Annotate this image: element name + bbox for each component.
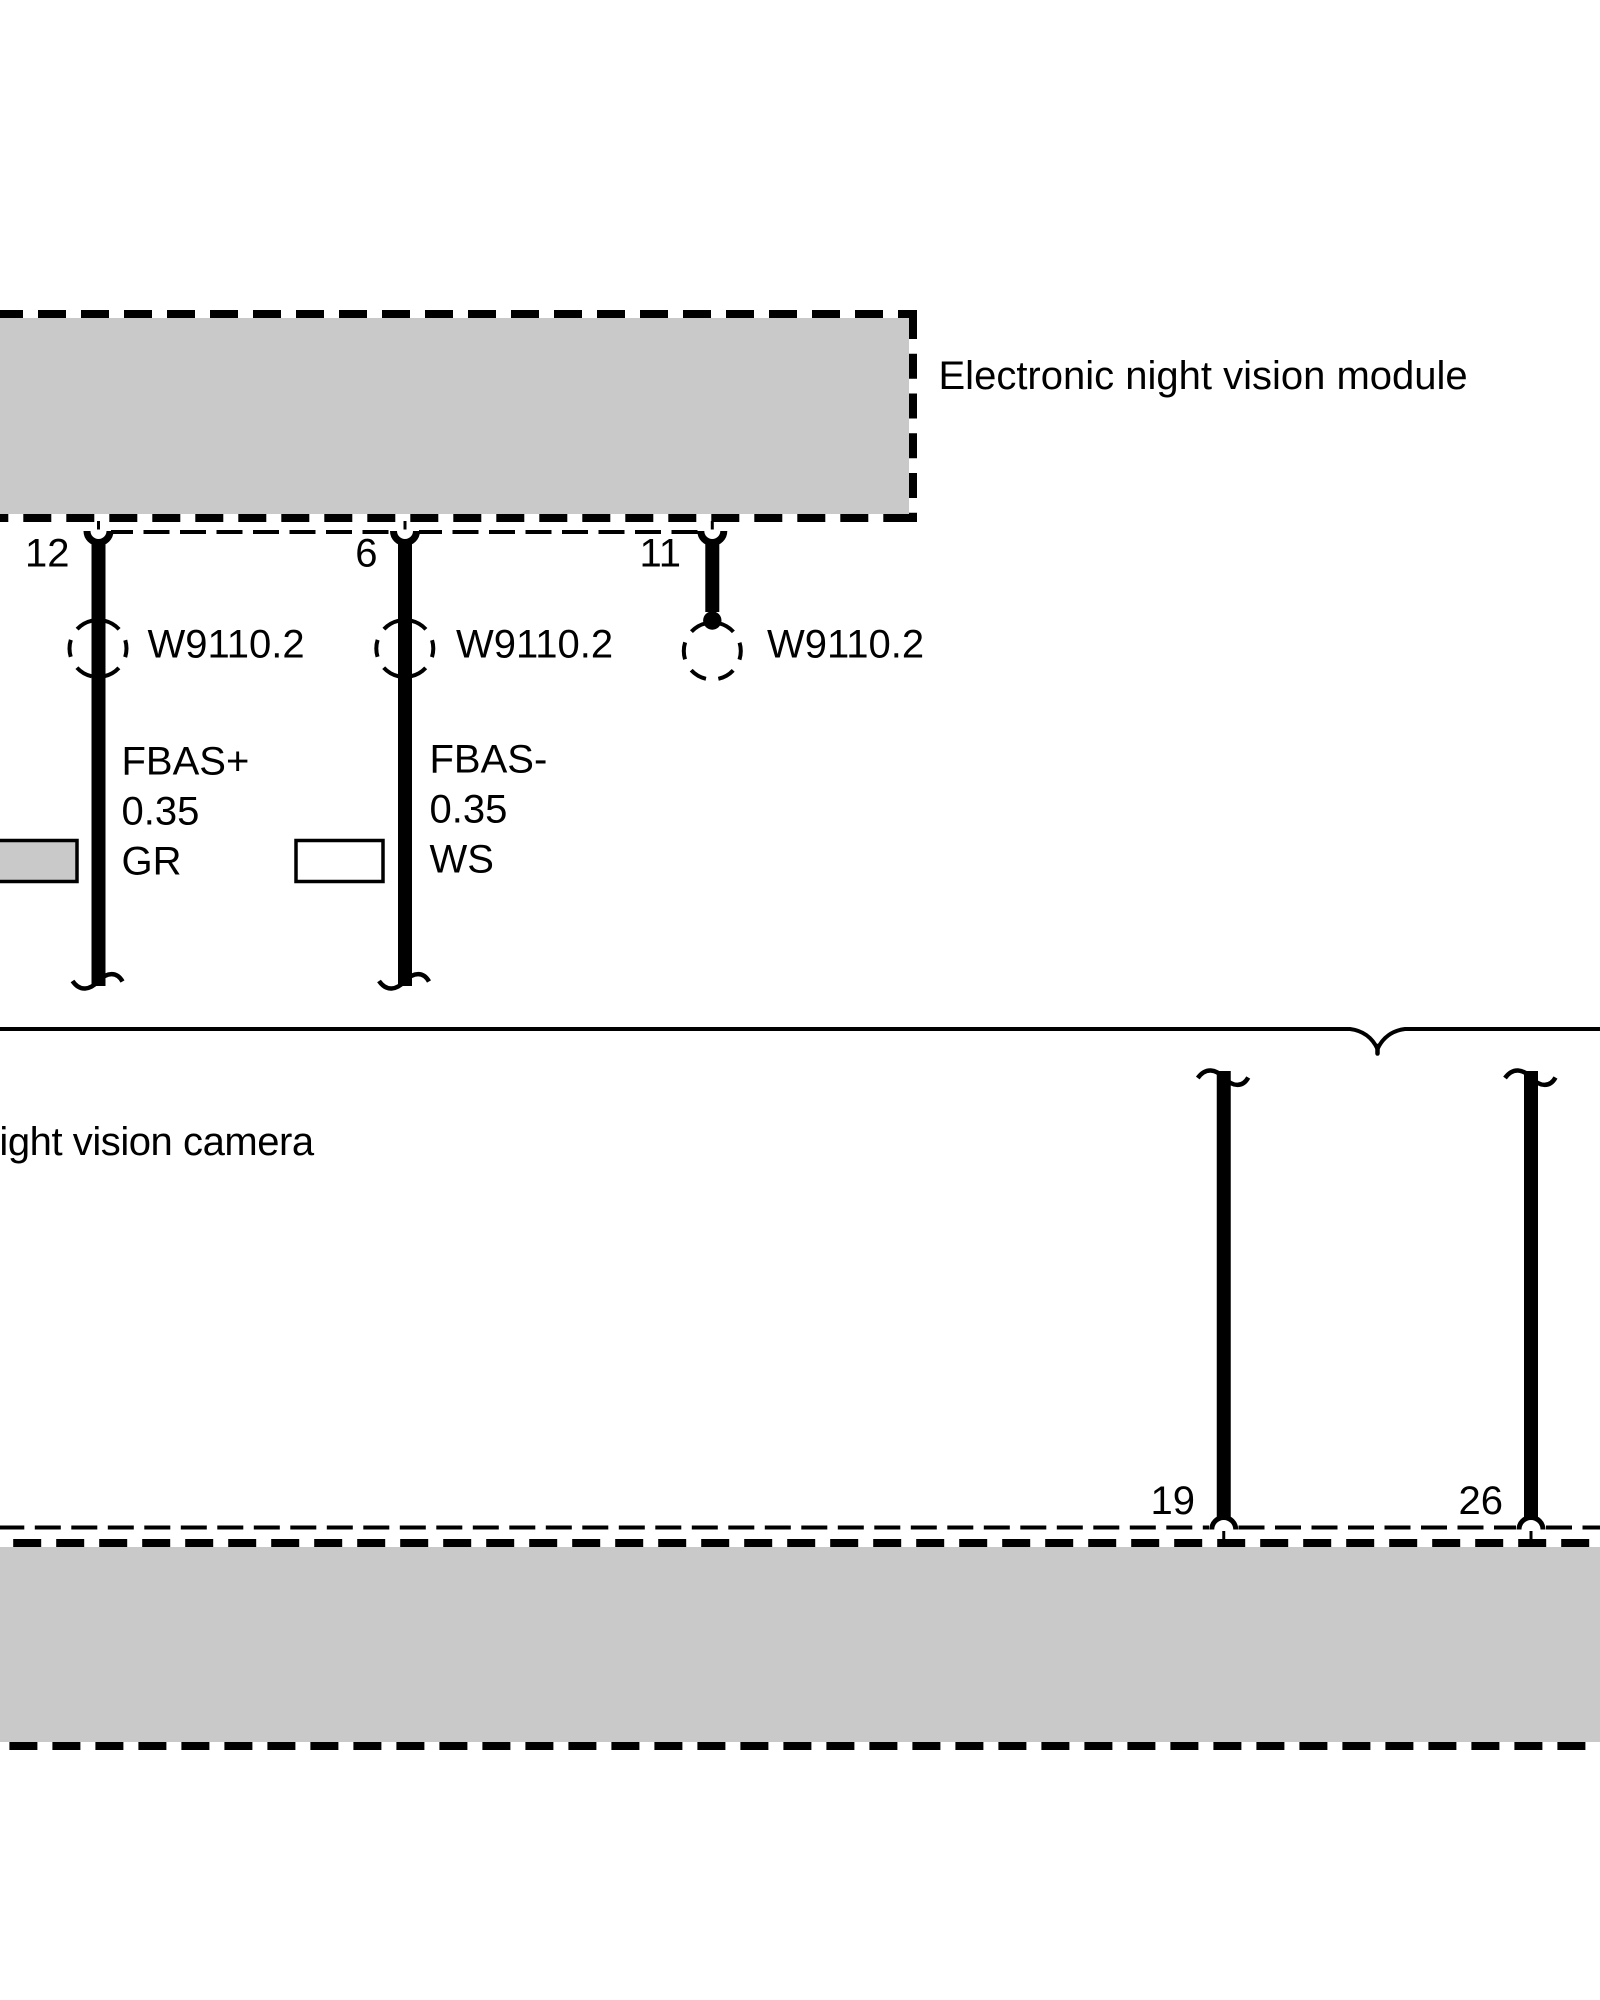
svg-text:FBAS-: FBAS- (430, 738, 548, 782)
svg-text:19: 19 (1151, 1479, 1196, 1523)
svg-text:W9110.2: W9110.2 (148, 623, 305, 667)
svg-text:W9110.2: W9110.2 (767, 623, 924, 667)
svg-text:26: 26 (1459, 1479, 1504, 1523)
svg-text:Electronic night vision module: Electronic night vision module (939, 354, 1468, 398)
svg-text:FBAS+: FBAS+ (122, 740, 250, 784)
svg-text:Night vision camera: Night vision camera (0, 1120, 315, 1164)
svg-text:12: 12 (25, 532, 70, 576)
svg-text:0.35: 0.35 (430, 788, 508, 832)
svg-text:GR: GR (122, 840, 182, 884)
svg-text:W9110.2: W9110.2 (456, 623, 613, 667)
svg-text:6: 6 (355, 532, 377, 576)
svg-text:0.35: 0.35 (122, 790, 200, 834)
svg-text:WS: WS (430, 838, 494, 882)
svg-text:11: 11 (639, 532, 681, 576)
